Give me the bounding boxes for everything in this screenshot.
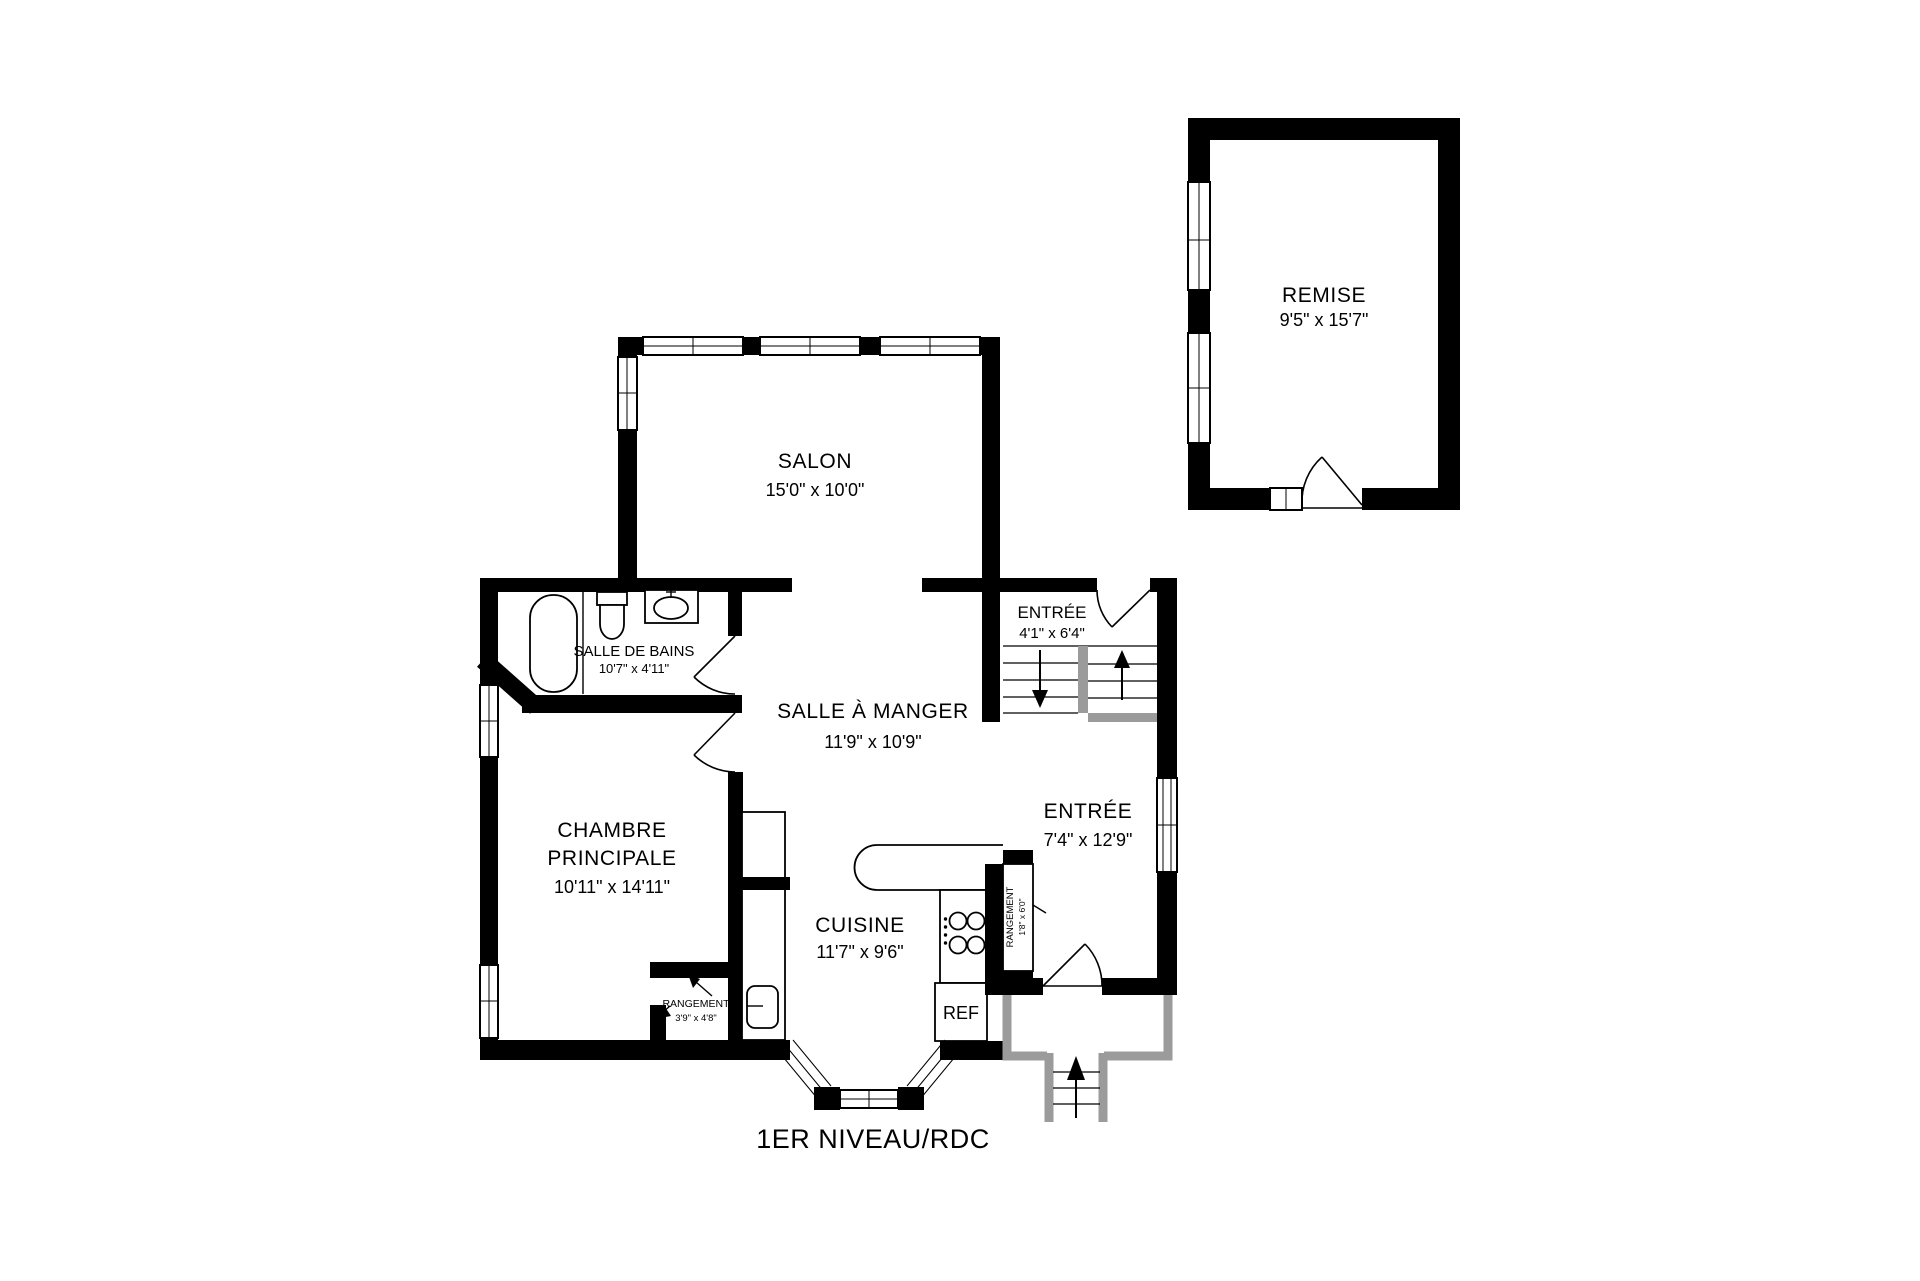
bathroom-top-wall	[480, 578, 792, 592]
kitchen-peninsula-counter	[855, 845, 1003, 890]
kitchen-room: REF CUISINE 11'7" x 9'6"	[742, 812, 1003, 1041]
remise-wall-top	[1188, 118, 1460, 140]
entry-bottom-wall	[1102, 978, 1177, 995]
exterior-wall-bottom	[480, 1040, 790, 1060]
remise-wall-left	[1188, 290, 1210, 333]
salon-window-top-1	[643, 337, 743, 355]
stair-divider	[1078, 646, 1088, 713]
salon-dims: 15'0" x 10'0"	[766, 480, 865, 500]
salon-window-top-2	[760, 337, 860, 355]
bedroom-door-swing	[694, 713, 735, 772]
stair-bottom-rail	[1088, 713, 1157, 722]
bedroom-window-lower	[480, 965, 498, 1038]
bedroom-kitchen-wall	[728, 772, 743, 1040]
refrigerator: REF	[935, 983, 987, 1041]
plan-title: 1ER NIVEAU/RDC	[756, 1124, 990, 1154]
bedroom-closet-label: RANGEMENT	[662, 998, 730, 1010]
remise-wall-bottom	[1188, 488, 1270, 510]
entry-top-wall	[1000, 578, 1097, 592]
bedroom-closet: RANGEMENT 3'9" x 4'8"	[650, 962, 733, 1040]
bay-corner-block-right	[898, 1087, 924, 1110]
bathroom-dims: 10'7" x 4'11"	[599, 661, 670, 676]
bay-corner-block-left	[814, 1087, 840, 1110]
bedroom-label-line2: PRINCIPALE	[547, 847, 676, 870]
toilet	[597, 592, 627, 639]
remise-room: REMISE 9'5" x 15'7"	[1188, 118, 1460, 510]
dining-room: SALLE À MANGER 11'9" x 10'9"	[777, 700, 969, 752]
stairs-down-arrow	[1032, 650, 1048, 708]
salon-dining-wall-right	[982, 337, 1000, 722]
stairs-up-arrow	[1114, 650, 1130, 700]
salon-window-top-3	[880, 337, 980, 355]
floor-plan-page: REMISE 9'5" x 15'7" SALON 15'0" x	[0, 0, 1920, 1281]
remise-wall-right	[1438, 118, 1460, 510]
floor-plan-canvas: REMISE 9'5" x 15'7" SALON 15'0" x	[0, 0, 1920, 1281]
kitchen-dims: 11'7" x 9'6"	[816, 942, 903, 962]
steps-up-arrow	[1067, 1056, 1085, 1118]
bedroom-label-line1: CHAMBRE	[557, 819, 666, 842]
exterior-steps	[1049, 1053, 1103, 1122]
salon-label: SALON	[778, 450, 852, 473]
kitchen-counter-return	[742, 877, 790, 890]
bedroom-dims: 10'11" x 14'11"	[554, 877, 670, 897]
remise-wall-left	[1188, 118, 1210, 182]
bedroom-window-upper	[480, 685, 498, 757]
dining-top-wall	[922, 578, 1000, 592]
bay-window-front	[840, 1090, 898, 1108]
exterior-wall-right	[1157, 872, 1177, 995]
bathroom-right-wall-stub	[728, 592, 742, 636]
remise-label: REMISE	[1282, 284, 1366, 307]
remise-dims: 9'5" x 15'7"	[1280, 310, 1369, 330]
bedroom-closet-dims: 3'9" x 4'8"	[675, 1013, 717, 1024]
kitchen-label: CUISINE	[815, 914, 904, 937]
bay-window	[779, 1040, 1010, 1110]
salon-room: SALON 15'0" x 10'0"	[618, 337, 1000, 722]
exterior-wall-left	[480, 757, 498, 965]
stove	[940, 890, 987, 983]
porch-rail-left	[1007, 995, 1047, 1056]
entry-closet-label: RANGEMENT	[1005, 886, 1016, 947]
salon-window-left	[618, 357, 637, 430]
remise-window-left-upper	[1188, 182, 1210, 290]
kitchen-entry-wall	[985, 864, 1003, 995]
bathroom-sink	[645, 589, 698, 623]
entry-bottom-wall	[985, 978, 1043, 995]
bathroom-label: SALLE DE BAINS	[574, 643, 695, 660]
exterior-wall-right	[1157, 578, 1177, 778]
entry-upper: ENTRÉE 4'1" x 6'4"	[1000, 578, 1177, 722]
entry-closet-dims: 1'8" x 6'0"	[1017, 898, 1027, 935]
kitchen-sink	[747, 986, 778, 1028]
refrigerator-label: REF	[943, 1003, 979, 1023]
entry-upper-dims: 4'1" x 6'4"	[1019, 625, 1085, 642]
bathroom-room: SALLE DE BAINS 10'7" x 4'11"	[480, 578, 742, 713]
dining-label: SALLE À MANGER	[777, 700, 969, 723]
remise-window-bottom	[1270, 488, 1302, 510]
remise-door-swing	[1302, 457, 1362, 508]
bathroom-bottom-wall	[522, 695, 742, 713]
dining-dims: 11'9" x 10'9"	[824, 732, 921, 752]
entry-lower-dims: 7'4" x 12'9"	[1044, 830, 1133, 850]
bathtub	[530, 595, 577, 692]
remise-window-left-lower	[1188, 333, 1210, 443]
staircase	[1003, 646, 1157, 722]
porch-rail-right	[1104, 995, 1168, 1056]
entry-window-right	[1157, 778, 1177, 872]
porch	[1007, 995, 1168, 1122]
bathroom-door-swing	[694, 636, 735, 694]
exterior-wall-bottom-right	[940, 1041, 1010, 1060]
remise-wall-bottom	[1362, 488, 1460, 510]
entry-upper-label: ENTRÉE	[1018, 603, 1087, 622]
entry-door-swing	[1043, 944, 1102, 986]
front-door-swing	[1097, 590, 1150, 627]
entry-closet: RANGEMENT 1'8" x 6'0"	[1003, 850, 1046, 985]
entry-lower-label: ENTRÉE	[1044, 800, 1133, 823]
